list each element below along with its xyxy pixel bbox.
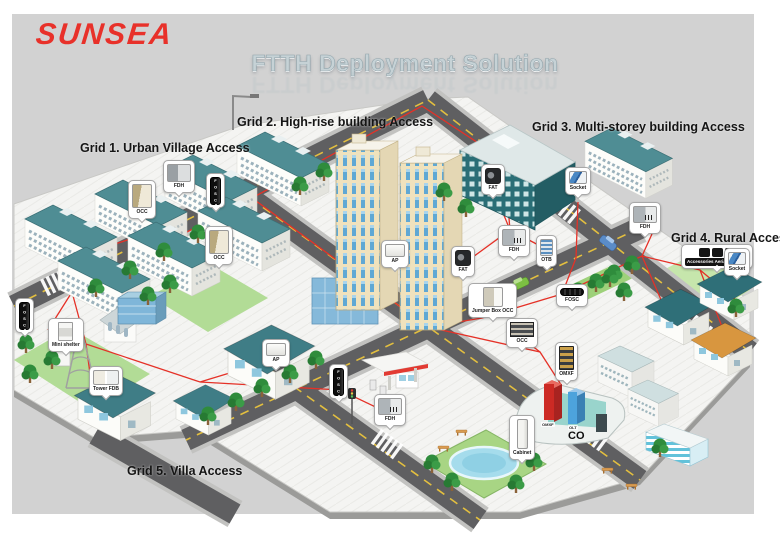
- fdh-cabinet-icon: [502, 229, 526, 246]
- callout-tower-fdb: Tower FDB: [89, 366, 123, 396]
- callout-ap-highrise: AP: [381, 240, 409, 268]
- co-label: CO: [568, 430, 585, 442]
- callout-label: Socket: [729, 266, 745, 273]
- callout-label: OTB: [541, 257, 552, 264]
- fdh-cabinet-icon: [378, 398, 402, 415]
- socket-icon: [569, 171, 587, 184]
- street-cabinet-icon: [517, 419, 528, 449]
- callout-label: FOSC: [213, 178, 218, 204]
- grid2-label: Grid 2. High-rise building Access: [237, 115, 433, 129]
- callout-jumper-box-occ: Jumper Box OCC: [468, 283, 517, 318]
- callout-label: FDH: [640, 224, 650, 231]
- tower-fdb-icon: [93, 370, 119, 385]
- callout-label: FDH: [385, 416, 395, 423]
- callout-label: FAT: [458, 267, 467, 274]
- callout-fat-highrise: FAT: [451, 246, 475, 277]
- callout-mini-shelter: Mini shelter: [48, 318, 84, 352]
- callout-label: FOSC: [336, 369, 341, 395]
- callout-occ-urban-1: OCC: [128, 180, 156, 219]
- omxf-rack-icon: [559, 346, 574, 370]
- callout-label: FOSC: [565, 297, 579, 304]
- callout-fosc-villa: FOSC: [329, 364, 348, 399]
- callout-omxf-co: OMXF: [555, 342, 578, 381]
- callout-label: Mini shelter: [52, 342, 80, 349]
- occ-cabinet-icon: [132, 184, 152, 208]
- fdh-cabinet-icon: [167, 164, 191, 182]
- grid1-label: Grid 1. Urban Village Access: [80, 141, 250, 155]
- callout-fosc-west: FOSC: [15, 298, 34, 333]
- callout-label: OCC: [136, 209, 147, 216]
- callout-label: OMXF: [559, 371, 573, 378]
- grid4-label: Grid 4. Rural Access: [671, 231, 780, 245]
- page: SUNSEA FTTH Deployment Solution FTTH Dep…: [0, 0, 780, 534]
- callout-ap-villa: AP: [262, 339, 290, 367]
- callout-label: AP: [273, 357, 280, 364]
- callout-label: FDH: [509, 247, 519, 254]
- callout-label: Cabinet: [513, 450, 531, 457]
- ap-panel-icon: [385, 244, 405, 257]
- tension-clamp-icon: [699, 248, 710, 257]
- mini-shelter-icon: [58, 322, 73, 341]
- occ-cabinet-icon: [209, 230, 229, 254]
- sunsea-logo: SUNSEA: [34, 18, 175, 52]
- omxf-frame-label: OMXF: [541, 422, 555, 427]
- fosc-closure-icon: [560, 288, 584, 296]
- callout-fat-multistorey: FAT: [481, 164, 505, 195]
- callout-occ-urban-2: OCC: [205, 226, 233, 265]
- page-title: FTTH Deployment Solution: [240, 50, 570, 77]
- callout-otb-multistorey: OTB: [536, 235, 557, 267]
- fosc-closure-icon: FOSC: [333, 368, 344, 396]
- callout-label: Socket: [570, 185, 586, 192]
- grid3-label: Grid 3. Multi-storey building Access: [532, 120, 745, 134]
- fat-terminal-icon: [455, 250, 471, 266]
- callout-fdh-urban: FDH: [163, 160, 195, 193]
- callout-label: AP: [392, 258, 399, 265]
- socket-icon: [728, 252, 746, 265]
- callout-fdh-villa: FDH: [374, 394, 406, 426]
- callout-label: Jumper Box OCC: [472, 308, 513, 315]
- ap-panel-icon: [266, 343, 286, 356]
- callout-label: OCC: [516, 338, 527, 345]
- callout-cabinet-co: Cabinet: [509, 415, 535, 460]
- callout-socket-rural: Socket: [724, 248, 750, 276]
- callout-socket-multistorey: Socket: [565, 167, 591, 195]
- suspension-clamp-icon: [712, 248, 723, 257]
- callout-fdh-rural: FDH: [629, 202, 661, 234]
- callout-label: FAT: [488, 185, 497, 192]
- callout-label: FDH: [174, 183, 184, 190]
- fat-terminal-icon: [485, 168, 501, 184]
- jumper-box-icon: [483, 287, 503, 307]
- callout-label: Tower FDB: [93, 386, 119, 393]
- grid5-label: Grid 5. Villa Access: [127, 464, 242, 478]
- otb-box-icon: [540, 239, 553, 256]
- callout-occ-co: OCC: [506, 318, 538, 348]
- callout-fosc-urban: FOSC: [206, 173, 225, 208]
- fosc-closure-icon: FOSC: [210, 177, 221, 205]
- callout-label: OCC: [213, 255, 224, 262]
- fdh-cabinet-icon: [633, 206, 657, 223]
- callout-label: FOSC: [22, 303, 27, 329]
- callout-fosc-road: FOSC: [556, 284, 588, 307]
- callout-fdh-highrise: FDH: [498, 225, 530, 257]
- occ-rack-icon: [510, 322, 534, 337]
- fosc-closure-icon: FOSC: [19, 302, 30, 330]
